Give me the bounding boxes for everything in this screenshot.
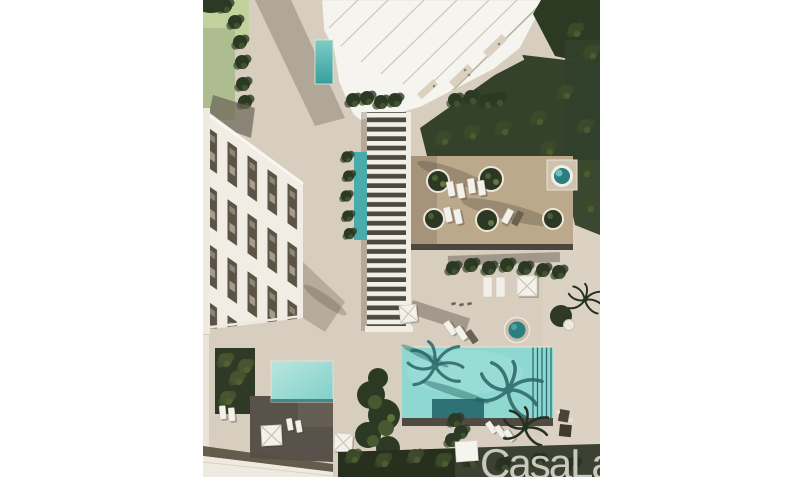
- amenity-deck: [411, 156, 577, 250]
- aerial-architectural-render: CasaLa: [203, 0, 600, 477]
- small-pool: [271, 361, 333, 402]
- pergola-end-cap: [365, 326, 413, 332]
- pergola-slats: [367, 112, 406, 331]
- round-table: [564, 320, 575, 331]
- patio-light: [298, 402, 333, 427]
- watermark-text: CasaLa: [480, 440, 600, 477]
- water-feature: [354, 152, 367, 240]
- patio-umbrella: [261, 425, 284, 448]
- lap-pool: [315, 40, 333, 84]
- white-umbrella: [455, 440, 478, 461]
- pergola-rail: [406, 112, 411, 331]
- rendered-image-canvas: CasaLa: [0, 0, 788, 477]
- townhouse-side-walk: [203, 108, 210, 334]
- patio-umbrella: [399, 304, 419, 325]
- patio-umbrella: [517, 276, 539, 298]
- deck-spa: [547, 160, 577, 190]
- poolside-spa: [505, 318, 530, 343]
- side-walk: [203, 335, 209, 460]
- render-scene: CasaLa: [203, 0, 600, 477]
- small-pool-edge: [271, 399, 333, 402]
- cabana: [496, 277, 505, 297]
- pergola-walkway: [361, 112, 413, 332]
- cabana: [483, 277, 492, 297]
